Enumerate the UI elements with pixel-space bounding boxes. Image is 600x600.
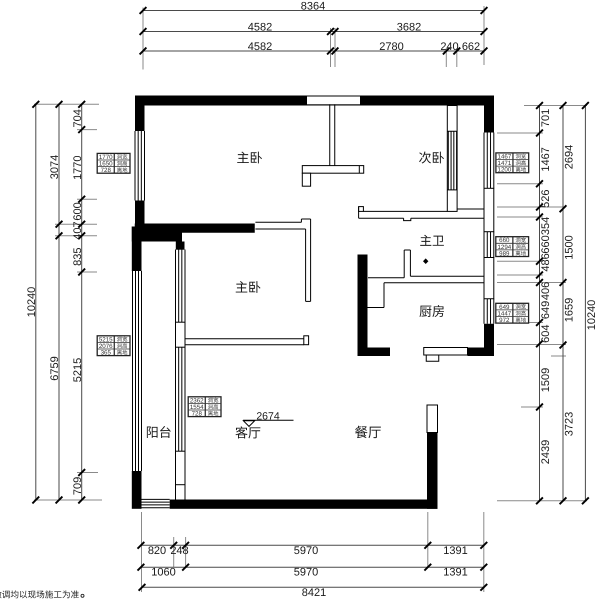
svg-text:835: 835: [72, 248, 84, 266]
svg-text:406: 406: [540, 282, 552, 300]
svg-text:240: 240: [440, 41, 458, 53]
svg-text:1391: 1391: [443, 545, 467, 557]
svg-text:2674: 2674: [256, 410, 280, 422]
svg-text:972: 972: [499, 317, 510, 324]
svg-text:6759: 6759: [49, 356, 61, 380]
svg-text:248: 248: [170, 545, 188, 557]
svg-text:486: 486: [540, 253, 552, 271]
svg-text:728: 728: [101, 167, 112, 174]
svg-text:1391: 1391: [443, 567, 467, 579]
svg-text:1770: 1770: [72, 155, 84, 179]
svg-text:728: 728: [192, 411, 203, 418]
svg-text:1060: 1060: [151, 567, 175, 579]
svg-text:704: 704: [72, 109, 84, 127]
svg-text:701: 701: [540, 109, 552, 127]
svg-text:1467: 1467: [540, 147, 552, 171]
svg-text:4582: 4582: [248, 22, 272, 34]
svg-text:5970: 5970: [294, 567, 318, 579]
svg-text:10240: 10240: [26, 287, 38, 318]
svg-text:526: 526: [540, 190, 552, 208]
svg-text:5970: 5970: [294, 545, 318, 557]
svg-text:2439: 2439: [540, 440, 552, 464]
svg-text:3723: 3723: [564, 412, 576, 436]
svg-text:407: 407: [72, 221, 84, 239]
svg-text:649: 649: [540, 301, 552, 319]
svg-text:820: 820: [148, 545, 166, 557]
svg-text:5215: 5215: [72, 358, 84, 382]
svg-text:2694: 2694: [564, 145, 576, 169]
svg-text:709: 709: [72, 477, 84, 495]
svg-text:1509: 1509: [540, 368, 552, 392]
svg-text:989: 989: [499, 250, 510, 257]
svg-text:354: 354: [540, 217, 552, 235]
svg-text:604: 604: [540, 325, 552, 343]
svg-text:8364: 8364: [301, 1, 325, 13]
svg-text:8421: 8421: [302, 587, 326, 599]
svg-text:3682: 3682: [397, 22, 421, 34]
svg-text:4582: 4582: [248, 41, 272, 53]
svg-text:1200: 1200: [498, 167, 512, 174]
svg-text:660: 660: [540, 235, 552, 253]
svg-text:600: 600: [72, 202, 84, 220]
svg-text:365: 365: [101, 350, 112, 357]
svg-text:1659: 1659: [564, 298, 576, 322]
svg-text:1500: 1500: [564, 235, 576, 259]
svg-text:10240: 10240: [586, 300, 598, 331]
svg-text:662: 662: [462, 41, 480, 53]
svg-text:2780: 2780: [379, 41, 403, 53]
svg-text:3074: 3074: [49, 155, 61, 179]
